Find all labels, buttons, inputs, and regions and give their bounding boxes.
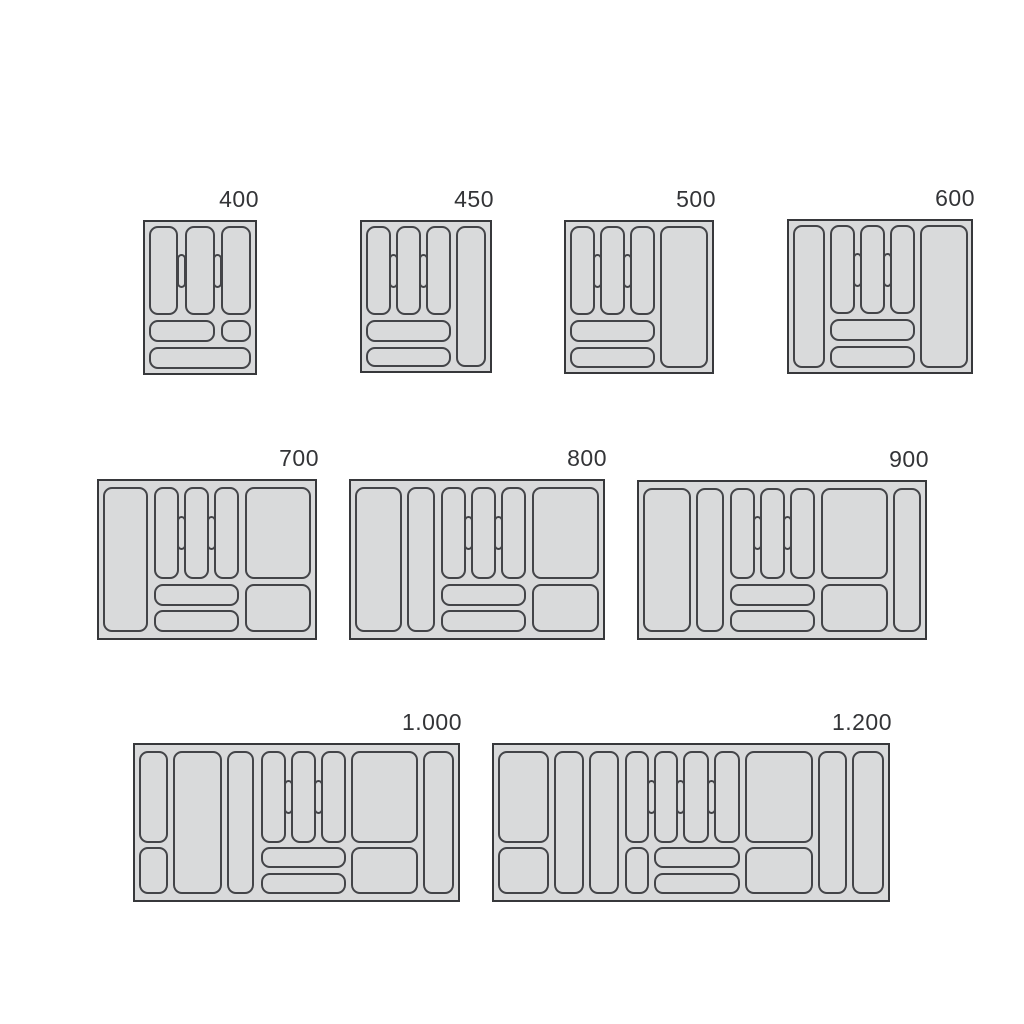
cutlery-slot xyxy=(221,226,251,315)
wide-compartment xyxy=(154,610,239,632)
wide-compartment xyxy=(830,346,915,368)
wide-compartment xyxy=(366,347,451,367)
wide-compartment xyxy=(261,873,346,894)
wide-compartment xyxy=(149,347,251,369)
cutlery-slot xyxy=(214,487,239,579)
divider-notch xyxy=(853,253,862,287)
large-compartment xyxy=(745,751,813,843)
cutlery-slot xyxy=(321,751,346,843)
cutlery-tray-700 xyxy=(97,479,317,640)
cutlery-slot xyxy=(714,751,740,843)
small-compartment xyxy=(821,584,888,632)
cutlery-tray-450 xyxy=(360,220,492,373)
cutlery-slot xyxy=(625,751,649,843)
side-compartment xyxy=(893,488,921,632)
divider-notch xyxy=(676,780,685,814)
cutlery-slot xyxy=(760,488,785,579)
cutlery-tray-600 xyxy=(787,219,973,374)
cutlery-tray-1000 xyxy=(133,743,460,902)
small-compartment xyxy=(351,847,418,894)
side-compartment xyxy=(920,225,968,368)
cutlery-slot xyxy=(830,225,855,314)
side-compartment xyxy=(643,488,691,632)
tray-size-label: 400 xyxy=(219,186,259,213)
cutlery-slot xyxy=(291,751,316,843)
large-compartment xyxy=(532,487,599,579)
side-compartment xyxy=(852,751,884,894)
side-compartment xyxy=(423,751,454,894)
divider-notch xyxy=(647,780,656,814)
cutlery-tray-500 xyxy=(564,220,714,374)
wide-compartment xyxy=(830,319,915,341)
tray-size-label: 1.000 xyxy=(402,709,462,736)
side-compartment xyxy=(589,751,619,894)
wide-compartment xyxy=(730,584,815,606)
cutlery-slot xyxy=(501,487,526,579)
side-compartment xyxy=(818,751,847,894)
divider-notch xyxy=(314,780,323,814)
side-compartment xyxy=(173,751,222,894)
tray-group-450: 450 xyxy=(360,186,492,373)
cutlery-slot xyxy=(860,225,885,314)
cutlery-slot xyxy=(471,487,496,579)
wide-compartment xyxy=(654,873,740,894)
tray-group-1000: 1.000 xyxy=(133,709,460,902)
cutlery-slot xyxy=(366,226,391,315)
tray-size-label: 700 xyxy=(279,445,319,472)
divider-notch xyxy=(593,254,602,288)
wide-compartment xyxy=(654,847,740,868)
cutlery-tray-1200 xyxy=(492,743,890,902)
cutlery-slot xyxy=(396,226,421,315)
divider-notch xyxy=(707,780,716,814)
side-compartment xyxy=(407,487,435,632)
tray-size-label: 450 xyxy=(454,186,494,213)
divider-notch xyxy=(389,254,398,288)
tray-size-label: 900 xyxy=(889,446,929,473)
wide-compartment xyxy=(154,584,239,606)
cutlery-slot xyxy=(890,225,915,314)
cutlery-slot xyxy=(790,488,815,579)
divider-notch xyxy=(623,254,632,288)
large-compartment xyxy=(821,488,888,579)
side-compartment xyxy=(793,225,825,368)
divider-notch xyxy=(464,516,473,550)
wide-compartment xyxy=(261,847,346,868)
tray-group-600: 600 xyxy=(787,185,973,374)
cutlery-slot xyxy=(154,487,179,579)
tray-group-500: 500 xyxy=(564,186,714,374)
small-compartment xyxy=(532,584,599,632)
cutlery-slot xyxy=(184,487,209,579)
tray-group-800: 800 xyxy=(349,445,605,640)
divider-notch xyxy=(177,254,186,288)
divider-notch xyxy=(207,516,216,550)
cutlery-slot xyxy=(185,226,215,315)
cutlery-slot xyxy=(654,751,678,843)
tray-size-label: 1.200 xyxy=(832,709,892,736)
small-compartment xyxy=(139,847,168,894)
cutlery-slot xyxy=(149,226,178,315)
side-compartment xyxy=(456,226,486,367)
side-compartment xyxy=(554,751,584,894)
small-compartment xyxy=(625,847,649,894)
catalog-page: { "colors": { "background": "#ffffff", "… xyxy=(0,0,1024,1024)
cutlery-slot xyxy=(730,488,755,579)
wide-compartment xyxy=(570,347,655,368)
wide-compartment xyxy=(730,610,815,632)
small-compartment xyxy=(221,320,251,342)
side-compartment xyxy=(660,226,708,368)
cutlery-tray-400 xyxy=(143,220,257,375)
side-compartment xyxy=(103,487,148,632)
wide-compartment xyxy=(149,320,215,342)
wide-compartment xyxy=(570,320,655,342)
tray-size-label: 500 xyxy=(676,186,716,213)
wide-compartment xyxy=(441,584,526,606)
divider-notch xyxy=(284,780,293,814)
cutlery-slot xyxy=(683,751,709,843)
tray-group-900: 900 xyxy=(637,446,927,640)
divider-notch xyxy=(753,516,762,550)
tray-group-1200: 1.200 xyxy=(492,709,890,902)
divider-notch xyxy=(213,254,222,288)
cutlery-slot xyxy=(441,487,466,579)
cutlery-tray-900 xyxy=(637,480,927,640)
tray-size-label: 800 xyxy=(567,445,607,472)
tray-group-400: 400 xyxy=(143,186,257,375)
small-compartment xyxy=(498,847,549,894)
large-compartment xyxy=(351,751,418,843)
cutlery-slot xyxy=(426,226,451,315)
small-compartment xyxy=(745,847,813,894)
cutlery-tray-800 xyxy=(349,479,605,640)
divider-notch xyxy=(883,253,892,287)
side-compartment xyxy=(696,488,724,632)
divider-notch xyxy=(177,516,186,550)
tray-size-label: 600 xyxy=(935,185,975,212)
small-compartment xyxy=(245,584,311,632)
side-compartment xyxy=(498,751,549,843)
tray-group-700: 700 xyxy=(97,445,317,640)
large-compartment xyxy=(245,487,311,579)
cutlery-slot xyxy=(600,226,625,315)
wide-compartment xyxy=(441,610,526,632)
cutlery-slot xyxy=(261,751,286,843)
cutlery-slot xyxy=(630,226,655,315)
side-compartment xyxy=(227,751,254,894)
side-compartment xyxy=(355,487,402,632)
divider-notch xyxy=(494,516,503,550)
cutlery-slot xyxy=(570,226,595,315)
side-compartment xyxy=(139,751,168,843)
divider-notch xyxy=(783,516,792,550)
divider-notch xyxy=(419,254,428,288)
wide-compartment xyxy=(366,320,451,342)
